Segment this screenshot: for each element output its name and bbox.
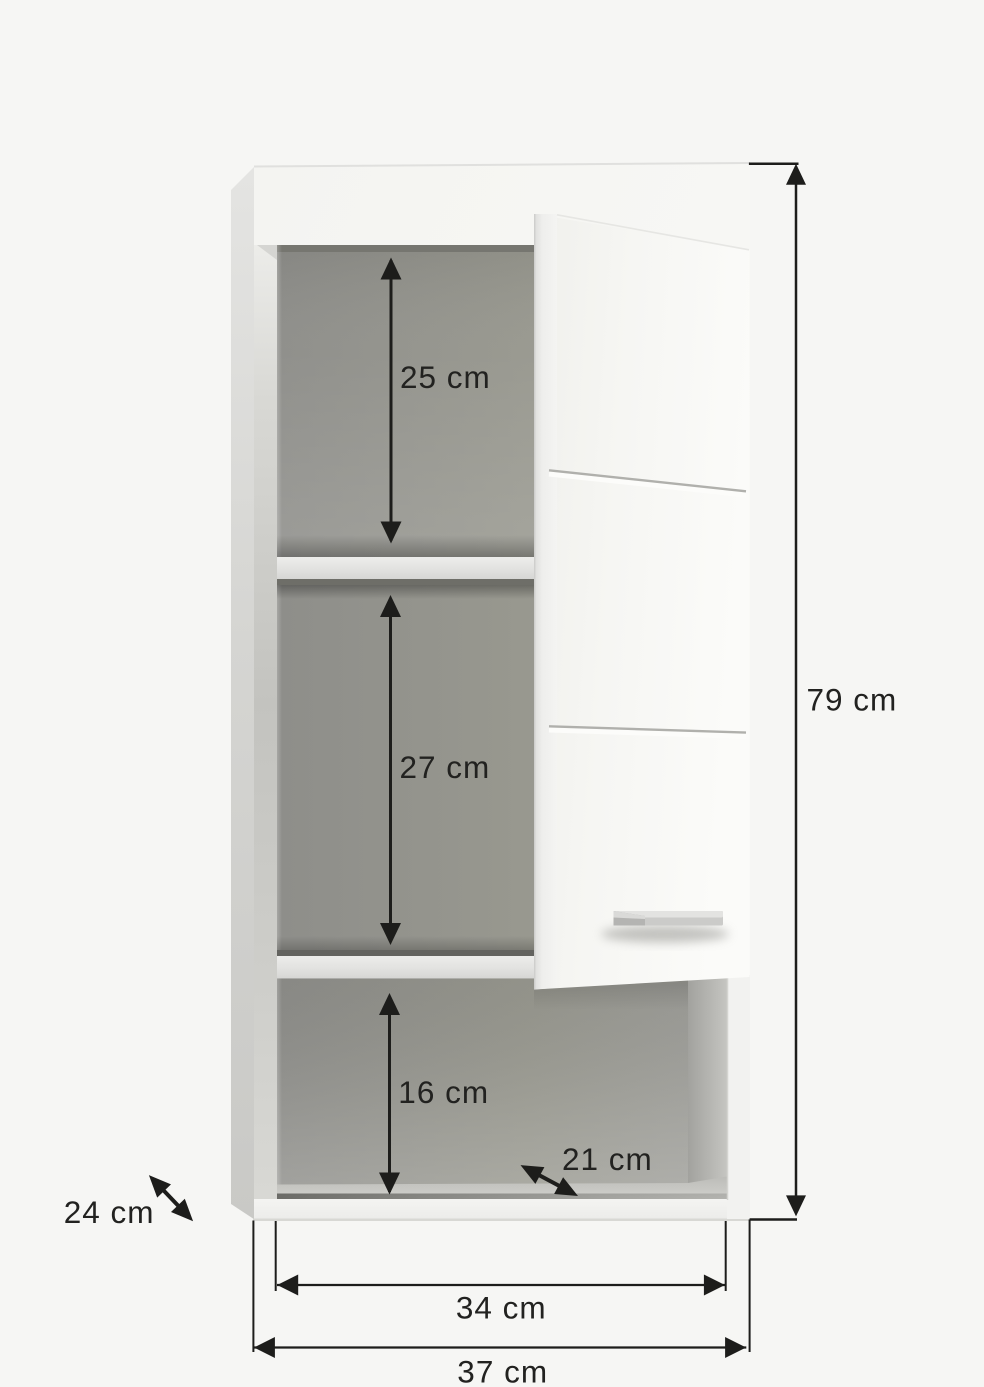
svg-text:24 cm: 24 cm — [64, 1194, 155, 1230]
svg-text:34 cm: 34 cm — [456, 1290, 547, 1326]
svg-text:79 cm: 79 cm — [807, 682, 898, 718]
svg-text:21 cm: 21 cm — [562, 1141, 653, 1177]
svg-text:25 cm: 25 cm — [400, 359, 491, 395]
svg-text:16 cm: 16 cm — [398, 1074, 489, 1110]
svg-text:27 cm: 27 cm — [400, 749, 491, 785]
svg-text:37 cm: 37 cm — [457, 1354, 548, 1387]
